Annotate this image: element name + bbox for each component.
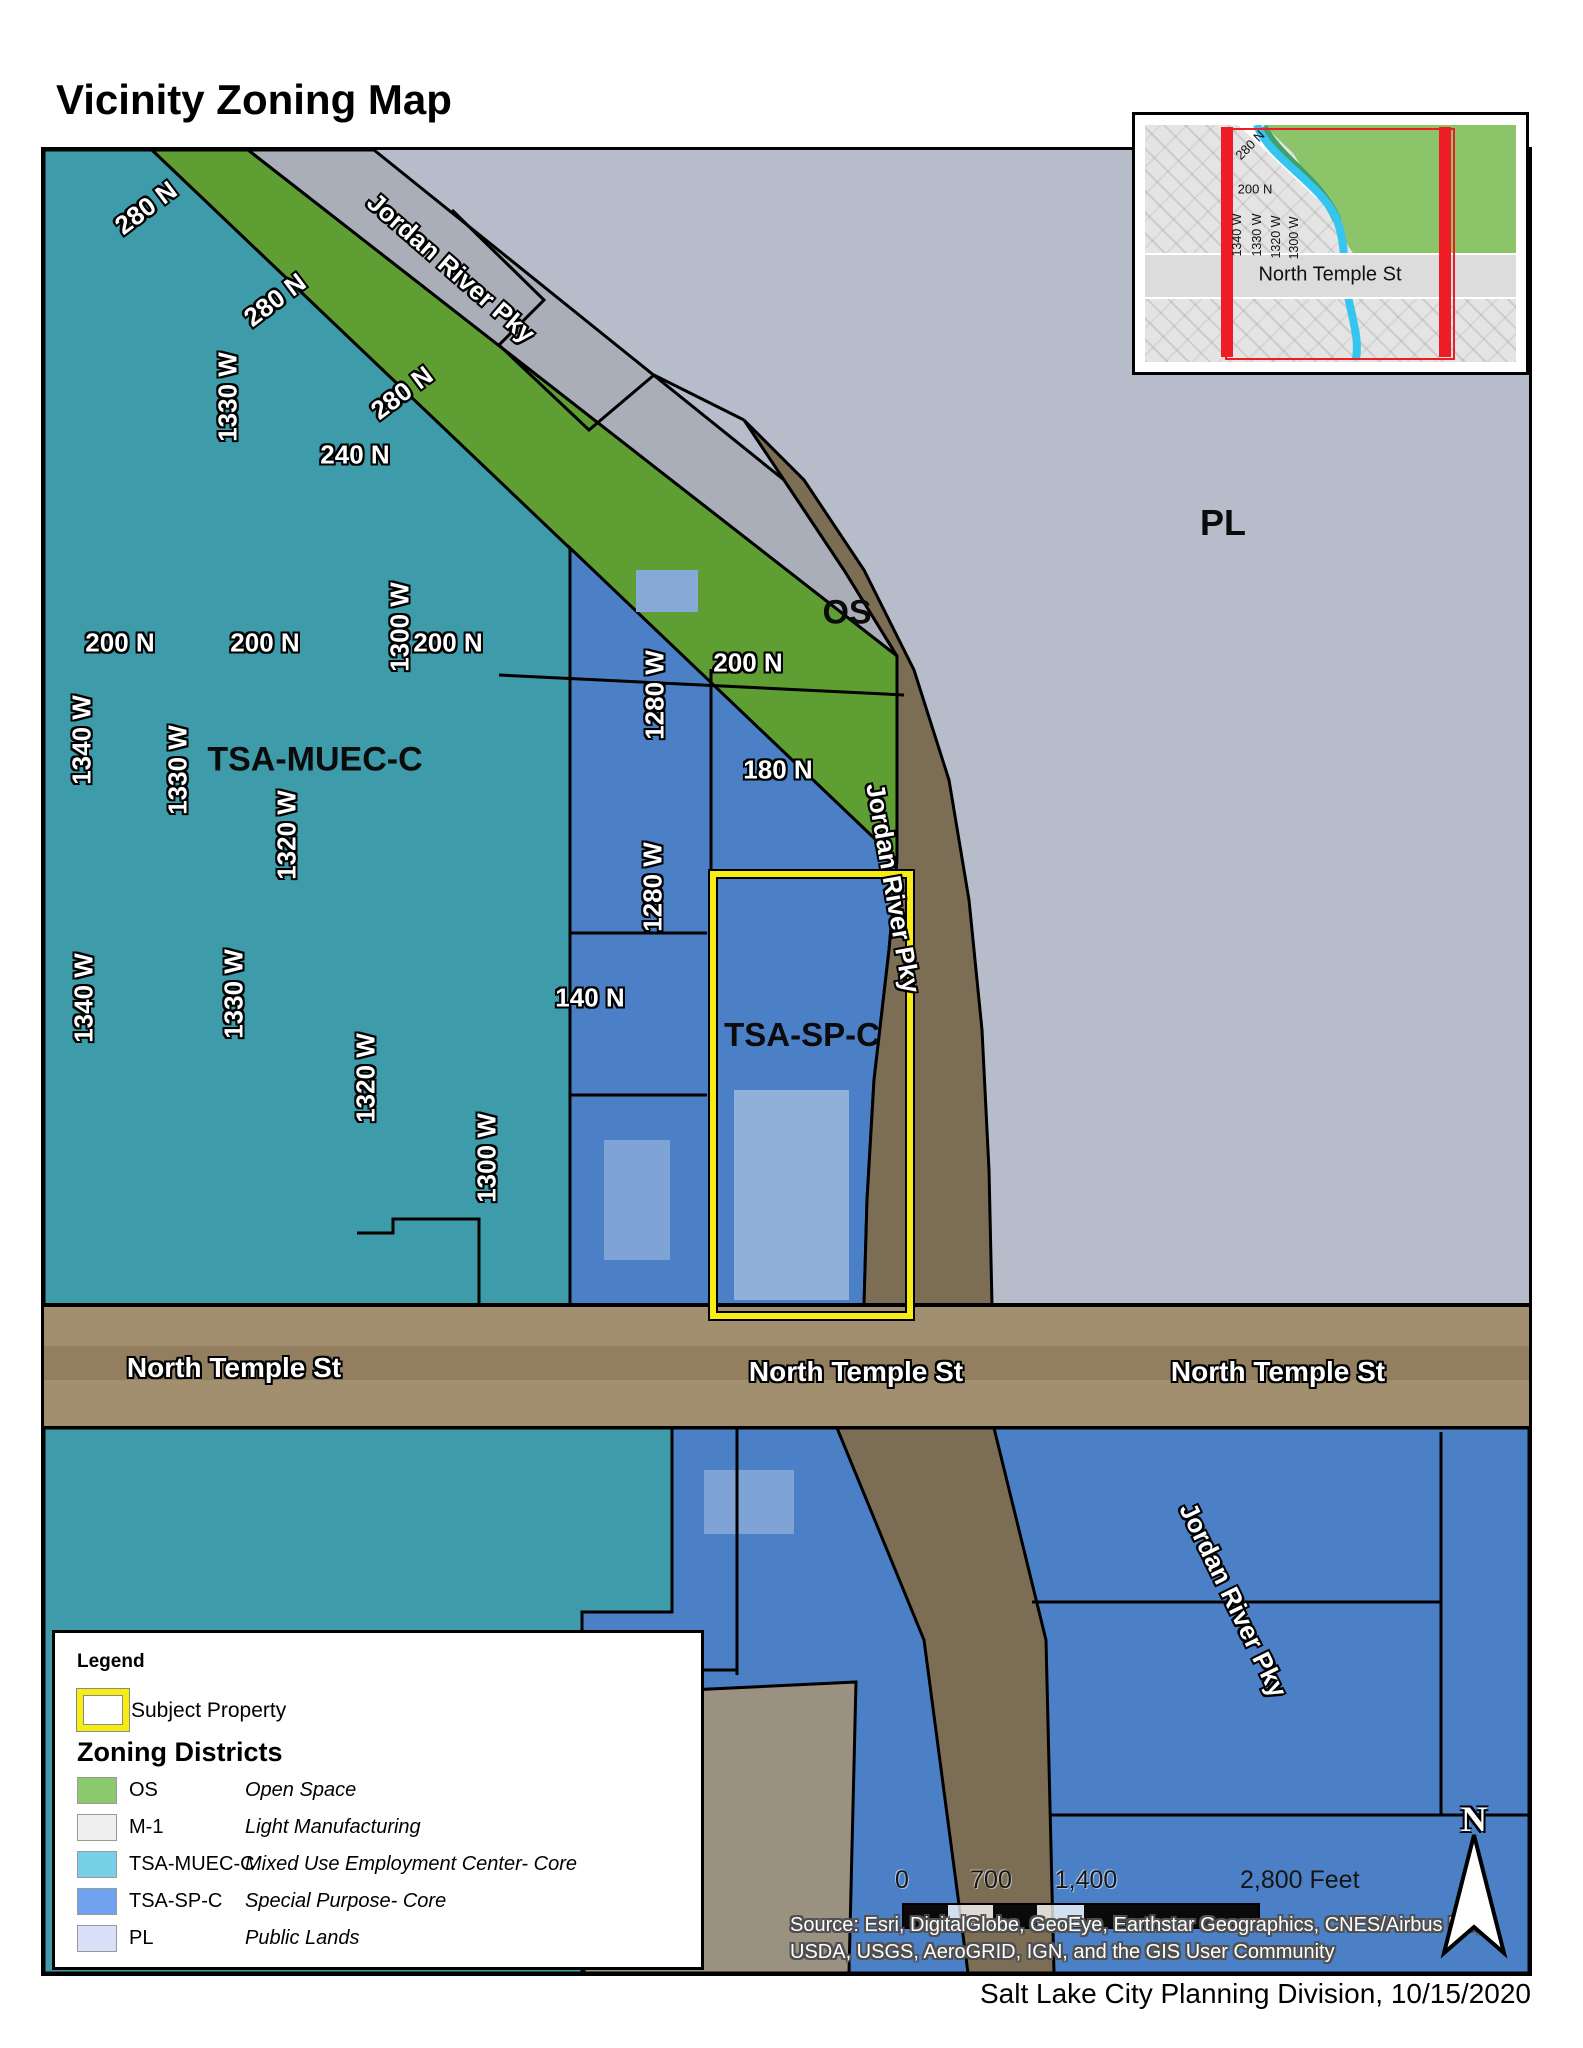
- legend-row-tsa-muec-c: TSA-MUEC-C Mixed Use Employment Center- …: [55, 1849, 701, 1883]
- street-label: 240 N: [320, 440, 389, 471]
- street-label: 1280 W: [640, 650, 671, 740]
- legend-code: TSA-MUEC-C: [129, 1853, 255, 1876]
- street-label-north-temple: North Temple St: [127, 1352, 341, 1384]
- zoning-districts-heading: Zoning Districts: [77, 1737, 283, 1768]
- legend-title: Legend: [77, 1651, 145, 1673]
- subject-property-label: Subject Property: [131, 1699, 286, 1723]
- street-label: 1280 W: [638, 842, 669, 932]
- legend: Legend Subject Property Zoning Districts…: [52, 1630, 704, 1970]
- swatch-os: [77, 1777, 117, 1804]
- inset-street-label: 1300 W: [1287, 216, 1301, 259]
- street-label: 1340 W: [69, 953, 100, 1043]
- legend-row-tsa-sp-c: TSA-SP-C Special Purpose- Core: [55, 1886, 701, 1920]
- legend-row-os: OS Open Space: [55, 1775, 701, 1809]
- inset-north-temple-label: North Temple St: [1258, 264, 1401, 287]
- inset-street-label: 1340 W: [1230, 213, 1244, 256]
- street-label: 140 N: [555, 983, 624, 1014]
- inset-street-label: 1330 W: [1250, 213, 1264, 256]
- zone-label-pl: PL: [1200, 502, 1246, 544]
- north-letter: N: [1461, 1798, 1487, 1840]
- subject-property-outline: [710, 871, 913, 1319]
- zoning-map-page: Vicinity Zoning Map: [0, 0, 1583, 2048]
- legend-desc: Public Lands: [245, 1927, 360, 1950]
- legend-desc: Light Manufacturing: [245, 1816, 421, 1839]
- legend-desc: Mixed Use Employment Center- Core: [245, 1853, 577, 1876]
- legend-desc: Open Space: [245, 1779, 356, 1802]
- scalebar-tick: 700: [970, 1866, 1012, 1895]
- credit-line: Salt Lake City Planning Division, 10/15/…: [980, 1978, 1531, 2010]
- street-label-north-temple: North Temple St: [749, 1356, 963, 1388]
- legend-code: OS: [129, 1779, 158, 1802]
- source-attribution: Source: Esri, DigitalGlobe, GeoEye, Eart…: [790, 1912, 1510, 1966]
- zone-label-tsa-sp-c: TSA-SP-C: [724, 1016, 880, 1054]
- inset-street-label: 1320 W: [1269, 215, 1283, 258]
- swatch-pl: [77, 1925, 117, 1952]
- north-arrow: N: [1429, 1805, 1519, 1965]
- subject-property-swatch: [77, 1689, 129, 1731]
- inset-locator-map: 280 N 200 N 1340 W 1330 W 1320 W 1300 W …: [1132, 112, 1529, 375]
- street-label-north-temple: North Temple St: [1171, 1356, 1385, 1388]
- source-line: USDA, USGS, AeroGRID, IGN, and the GIS U…: [790, 1939, 1510, 1966]
- legend-code: M-1: [129, 1816, 163, 1839]
- street-label: 1340 W: [67, 695, 98, 785]
- street-label: 200 N: [85, 628, 154, 659]
- street-label: 200 N: [413, 628, 482, 659]
- street-label: 1320 W: [272, 790, 303, 880]
- legend-desc: Special Purpose- Core: [245, 1890, 446, 1913]
- street-label: 1300 W: [385, 582, 416, 672]
- zone-label-tsa-muec-c: TSA-MUEC-C: [207, 741, 422, 780]
- street-label: 1300 W: [472, 1113, 503, 1203]
- street-label: 1330 W: [219, 949, 250, 1039]
- swatch-m1: [77, 1814, 117, 1841]
- street-label: 200 N: [230, 628, 299, 659]
- source-line: Source: Esri, DigitalGlobe, GeoEye, Eart…: [790, 1912, 1510, 1939]
- vicinity-map: 280 N 280 N 280 N 240 N 200 N 200 N 200 …: [44, 150, 1529, 1973]
- building-roof: [704, 1470, 794, 1534]
- street-label: 1330 W: [163, 725, 194, 815]
- building-roof: [604, 1140, 670, 1260]
- legend-row-m1: M-1 Light Manufacturing: [55, 1812, 701, 1846]
- scalebar-tick: 1,400: [1055, 1866, 1118, 1895]
- swatch-tsa-muec-c: [77, 1851, 117, 1878]
- scalebar-end-label: 2,800 Feet: [1240, 1866, 1360, 1895]
- swatch-tsa-sp-c: [77, 1888, 117, 1915]
- scalebar-tick: 0: [895, 1866, 909, 1895]
- legend-row-pl: PL Public Lands: [55, 1923, 701, 1957]
- legend-code: TSA-SP-C: [129, 1890, 222, 1913]
- street-label: 1320 W: [351, 1033, 382, 1123]
- street-label: 200 N: [713, 648, 782, 679]
- zone-label-os: OS: [822, 594, 871, 633]
- street-label: 1330 W: [213, 352, 244, 442]
- street-label: 180 N: [743, 755, 812, 786]
- building-roof: [636, 570, 698, 612]
- inset-map-content: 280 N 200 N 1340 W 1330 W 1320 W 1300 W …: [1145, 125, 1516, 362]
- legend-code: PL: [129, 1927, 153, 1950]
- inset-street-label: 200 N: [1238, 182, 1273, 197]
- page-title: Vicinity Zoning Map: [56, 76, 452, 124]
